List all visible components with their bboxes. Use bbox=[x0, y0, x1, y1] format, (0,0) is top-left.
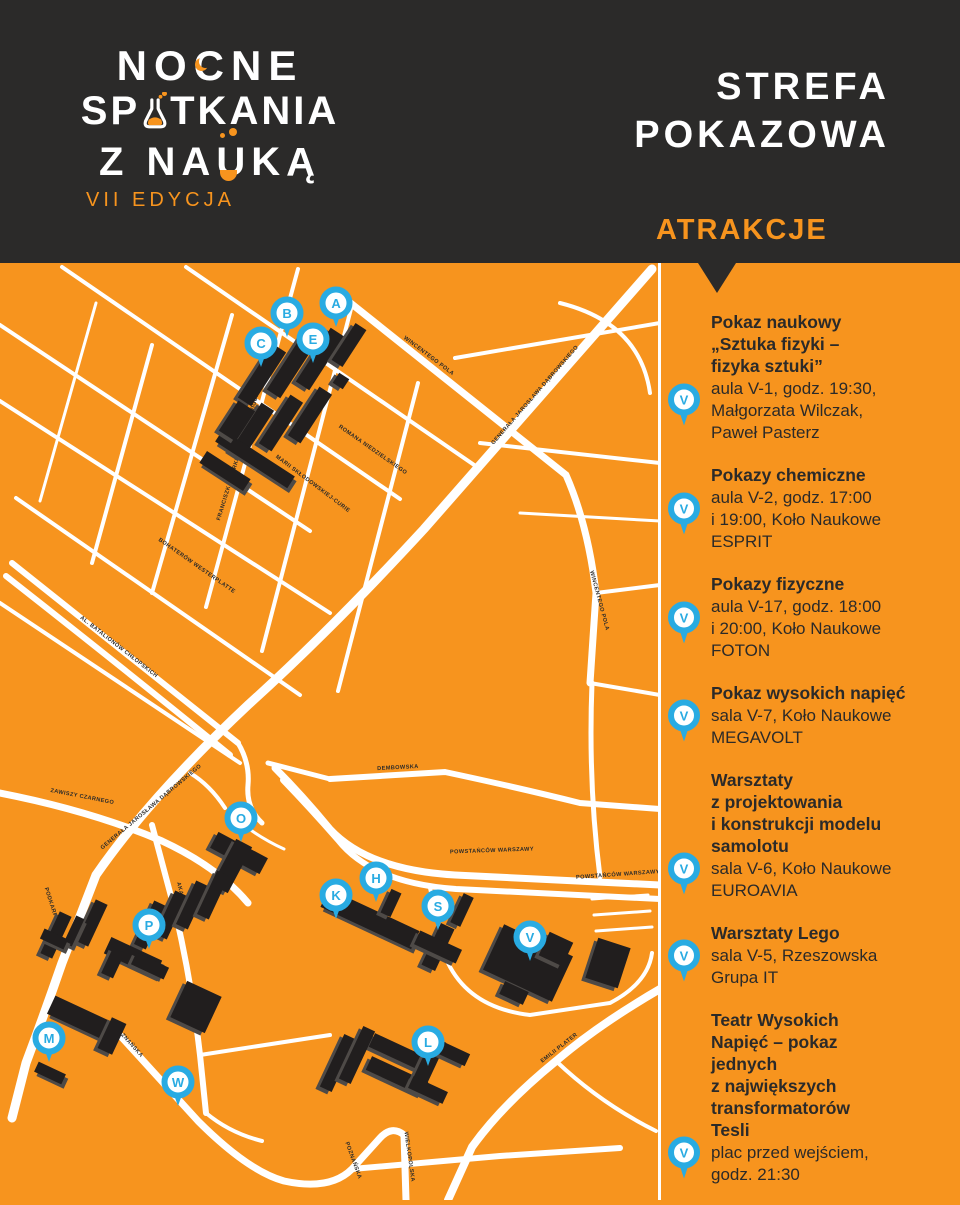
attraction-detail-line: Małgorzata Wilczak, bbox=[711, 400, 950, 422]
location-pin-icon: V bbox=[667, 600, 701, 646]
attraction-title-line: Napięć – pokaz bbox=[711, 1031, 950, 1053]
attraction-title-line: Pokazy chemiczne bbox=[711, 464, 950, 486]
location-pin-icon: V bbox=[667, 698, 701, 744]
svg-text:V: V bbox=[526, 930, 535, 945]
attraction-item: Warsztatyz projektowaniai konstrukcji mo… bbox=[711, 769, 950, 902]
road bbox=[594, 911, 650, 915]
attraction-detail-line: i 20:00, Koło Naukowe bbox=[711, 618, 950, 640]
attraction-title-line: Teatr Wysokich bbox=[711, 1009, 950, 1031]
road bbox=[275, 768, 660, 885]
road bbox=[190, 773, 225, 808]
event-logo: NOCNE SPTKANIA Z NAUKĄ VII EDYCJA bbox=[70, 42, 350, 212]
svg-text:P: P bbox=[145, 918, 154, 933]
attraction-title-line: Warsztaty Lego bbox=[711, 922, 950, 944]
attraction-title-line: Tesli bbox=[711, 1119, 950, 1141]
building bbox=[166, 980, 222, 1037]
attraction-title-line: fizyka sztuki” bbox=[711, 355, 950, 377]
road bbox=[352, 1148, 620, 1169]
road bbox=[200, 1035, 330, 1055]
moon-icon bbox=[199, 55, 212, 68]
svg-text:V: V bbox=[680, 1145, 689, 1160]
zone-title-line2: POKAZOWA bbox=[634, 112, 890, 160]
attractions-list: Pokaz naukowy„Sztuka fizyki –fizyka sztu… bbox=[711, 311, 950, 1186]
attraction-detail-line: sala V-5, Rzeszowska bbox=[711, 945, 950, 967]
road bbox=[330, 772, 660, 809]
attraction-details: Vaula V-2, godz. 17:00i 19:00, Koło Nauk… bbox=[711, 487, 950, 553]
attraction-title-line: Pokazy fizyczne bbox=[711, 573, 950, 595]
location-pin-icon: V bbox=[667, 1135, 701, 1181]
svg-text:V: V bbox=[680, 708, 689, 723]
svg-text:V: V bbox=[680, 861, 689, 876]
road bbox=[348, 301, 596, 683]
svg-text:H: H bbox=[371, 871, 380, 886]
attraction-detail-line: MEGAVOLT bbox=[711, 727, 950, 749]
road bbox=[6, 576, 230, 755]
attraction-detail-line: plac przed wejściem, bbox=[711, 1142, 950, 1164]
svg-text:K: K bbox=[331, 888, 341, 903]
attraction-item: Pokazy chemiczneVaula V-2, godz. 17:00i … bbox=[711, 464, 950, 553]
attraction-detail-line: i 19:00, Koło Naukowe bbox=[711, 509, 950, 531]
road-label: ROMANA NIEDZIELSKIEGO bbox=[337, 424, 408, 476]
logo-line-1: NOCNE bbox=[70, 42, 350, 89]
road-label: POWSTAŃCÓW WARSZAWY bbox=[450, 845, 534, 856]
attraction-pin: V bbox=[667, 600, 701, 651]
road-label: GENERAŁA JAROSŁAWA DĄBROWSKIEGO bbox=[491, 344, 581, 446]
attraction-title-line: Warsztaty bbox=[711, 769, 950, 791]
svg-text:M: M bbox=[44, 1031, 55, 1046]
attraction-item: Teatr WysokichNapięć – pokazjednychz naj… bbox=[711, 1009, 950, 1186]
attraction-pin: V bbox=[667, 1135, 701, 1186]
road bbox=[92, 345, 152, 563]
attraction-details: Vsala V-5, RzeszowskaGrupa IT bbox=[711, 945, 950, 989]
road bbox=[596, 585, 660, 593]
attraction-details: Vsala V-7, Koło NaukoweMEGAVOLT bbox=[711, 705, 950, 749]
map-marker-M[interactable]: M bbox=[36, 1025, 63, 1063]
attraction-pin: V bbox=[667, 382, 701, 433]
svg-text:O: O bbox=[236, 811, 246, 826]
location-pin-icon: V bbox=[667, 938, 701, 984]
location-pin-icon: V bbox=[667, 491, 701, 537]
attraction-title-line: samolotu bbox=[711, 835, 950, 857]
attraction-pin: V bbox=[667, 938, 701, 989]
building bbox=[581, 937, 630, 992]
attraction-title: Warsztaty Lego bbox=[711, 922, 950, 944]
road bbox=[591, 683, 600, 877]
attraction-detail-line: EUROAVIA bbox=[711, 880, 950, 902]
attraction-item: Pokaz wysokich napięćVsala V-7, Koło Nau… bbox=[711, 682, 950, 749]
attraction-title-line: z projektowania bbox=[711, 791, 950, 813]
map-svg: GENERAŁA JAROSŁAWA DĄBROWSKIEGOGENERAŁA … bbox=[0, 263, 660, 1200]
event-poster: { "colors":{"orange":"#f7941e","dark":"#… bbox=[0, 0, 960, 1200]
svg-text:C: C bbox=[256, 336, 266, 351]
attraction-detail-line: aula V-2, godz. 17:00 bbox=[711, 487, 950, 509]
attractions-panel: Pokaz naukowy„Sztuka fizyki –fizyka sztu… bbox=[661, 263, 960, 1200]
attraction-item: Pokaz naukowy„Sztuka fizyki –fizyka sztu… bbox=[711, 311, 950, 444]
svg-text:W: W bbox=[172, 1075, 185, 1090]
attraction-title: Teatr WysokichNapięć – pokazjednychz naj… bbox=[711, 1009, 950, 1141]
map-marker-W[interactable]: W bbox=[165, 1069, 192, 1107]
attraction-title: Pokazy chemiczne bbox=[711, 464, 950, 486]
road bbox=[596, 927, 652, 931]
attraction-details: Vplac przed wejściem,godz. 21:30 bbox=[711, 1142, 950, 1186]
svg-text:V: V bbox=[680, 948, 689, 963]
svg-text:V: V bbox=[680, 610, 689, 625]
attraction-details: Vaula V-1, godz. 19:30,Małgorzata Wilcza… bbox=[711, 378, 950, 444]
attraction-title: Pokaz wysokich napięć bbox=[711, 682, 950, 704]
road bbox=[40, 303, 96, 501]
road bbox=[520, 513, 660, 521]
section-label-atrakcje: ATRAKCJE bbox=[656, 214, 828, 247]
svg-text:V: V bbox=[680, 501, 689, 516]
attraction-detail-line: Paweł Pasterz bbox=[711, 422, 950, 444]
attraction-title-line: i konstrukcji modelu bbox=[711, 813, 950, 835]
attraction-pin: V bbox=[667, 698, 701, 749]
road bbox=[338, 383, 418, 691]
svg-text:S: S bbox=[434, 899, 443, 914]
attraction-detail-line: aula V-1, godz. 19:30, bbox=[711, 378, 950, 400]
attraction-detail-line: sala V-6, Koło Naukowe bbox=[711, 858, 950, 880]
logo-line-2: SPTKANIA bbox=[70, 89, 350, 140]
attraction-detail-line: godz. 21:30 bbox=[711, 1164, 950, 1186]
attraction-title-line: „Sztuka fizyki – bbox=[711, 333, 950, 355]
attraction-title-line: transformatorów bbox=[711, 1097, 950, 1119]
attraction-title-line: z największych bbox=[711, 1075, 950, 1097]
attraction-title-line: jednych bbox=[711, 1053, 950, 1075]
attraction-title: Pokaz naukowy„Sztuka fizyki –fizyka sztu… bbox=[711, 311, 950, 377]
attraction-title-line: Pokaz naukowy bbox=[711, 311, 950, 333]
header: NOCNE SPTKANIA Z NAUKĄ VII EDYCJA STREFA… bbox=[0, 0, 960, 263]
attraction-pin: V bbox=[667, 851, 701, 902]
attraction-title-line: Pokaz wysokich napięć bbox=[711, 682, 950, 704]
attraction-item: Warsztaty LegoVsala V-5, RzeszowskaGrupa… bbox=[711, 922, 950, 989]
attraction-title: Warsztatyz projektowaniai konstrukcji mo… bbox=[711, 769, 950, 857]
road bbox=[590, 683, 660, 695]
svg-text:L: L bbox=[424, 1035, 432, 1050]
map-marker-O[interactable]: O bbox=[228, 805, 255, 843]
road bbox=[448, 989, 660, 1200]
edition-label: VII EDYCJA bbox=[70, 189, 350, 212]
attraction-detail-line: sala V-7, Koło Naukowe bbox=[711, 705, 950, 727]
svg-text:B: B bbox=[282, 306, 291, 321]
attraction-detail-line: FOTON bbox=[711, 640, 950, 662]
attraction-detail-line: Grupa IT bbox=[711, 967, 950, 989]
attraction-detail-line: aula V-17, godz. 18:00 bbox=[711, 596, 950, 618]
svg-text:E: E bbox=[309, 332, 318, 347]
attraction-item: Pokazy fizyczneVaula V-17, godz. 18:00i … bbox=[711, 573, 950, 662]
logo-line-3: Z NAUKĄ bbox=[70, 140, 350, 185]
location-pin-icon: V bbox=[667, 851, 701, 897]
attraction-pin: V bbox=[667, 491, 701, 542]
attraction-details: Vaula V-17, godz. 18:00i 20:00, Koło Nau… bbox=[711, 596, 950, 662]
map-marker-A[interactable]: A bbox=[323, 290, 350, 328]
road-label: POWSTAŃCÓW WARSZAWY bbox=[576, 867, 660, 881]
flask-icon bbox=[140, 92, 170, 140]
zone-title: STREFA POKAZOWA bbox=[634, 64, 890, 159]
road-label: DEMBOWSKA bbox=[377, 764, 419, 772]
road bbox=[480, 443, 660, 463]
road bbox=[556, 1061, 656, 1131]
road-label: WINCENTEGO POLA bbox=[402, 335, 455, 377]
svg-text:V: V bbox=[680, 392, 689, 407]
attraction-details: Vsala V-6, Koło NaukoweEUROAVIA bbox=[711, 858, 950, 902]
location-pin-icon: V bbox=[667, 382, 701, 428]
attraction-detail-line: ESPRIT bbox=[711, 531, 950, 553]
campus-map: GENERAŁA JAROSŁAWA DĄBROWSKIEGOGENERAŁA … bbox=[0, 263, 660, 1200]
svg-text:A: A bbox=[331, 296, 341, 311]
building bbox=[33, 1062, 70, 1089]
zone-title-line1: STREFA bbox=[634, 64, 890, 112]
attraction-title: Pokazy fizyczne bbox=[711, 573, 950, 595]
